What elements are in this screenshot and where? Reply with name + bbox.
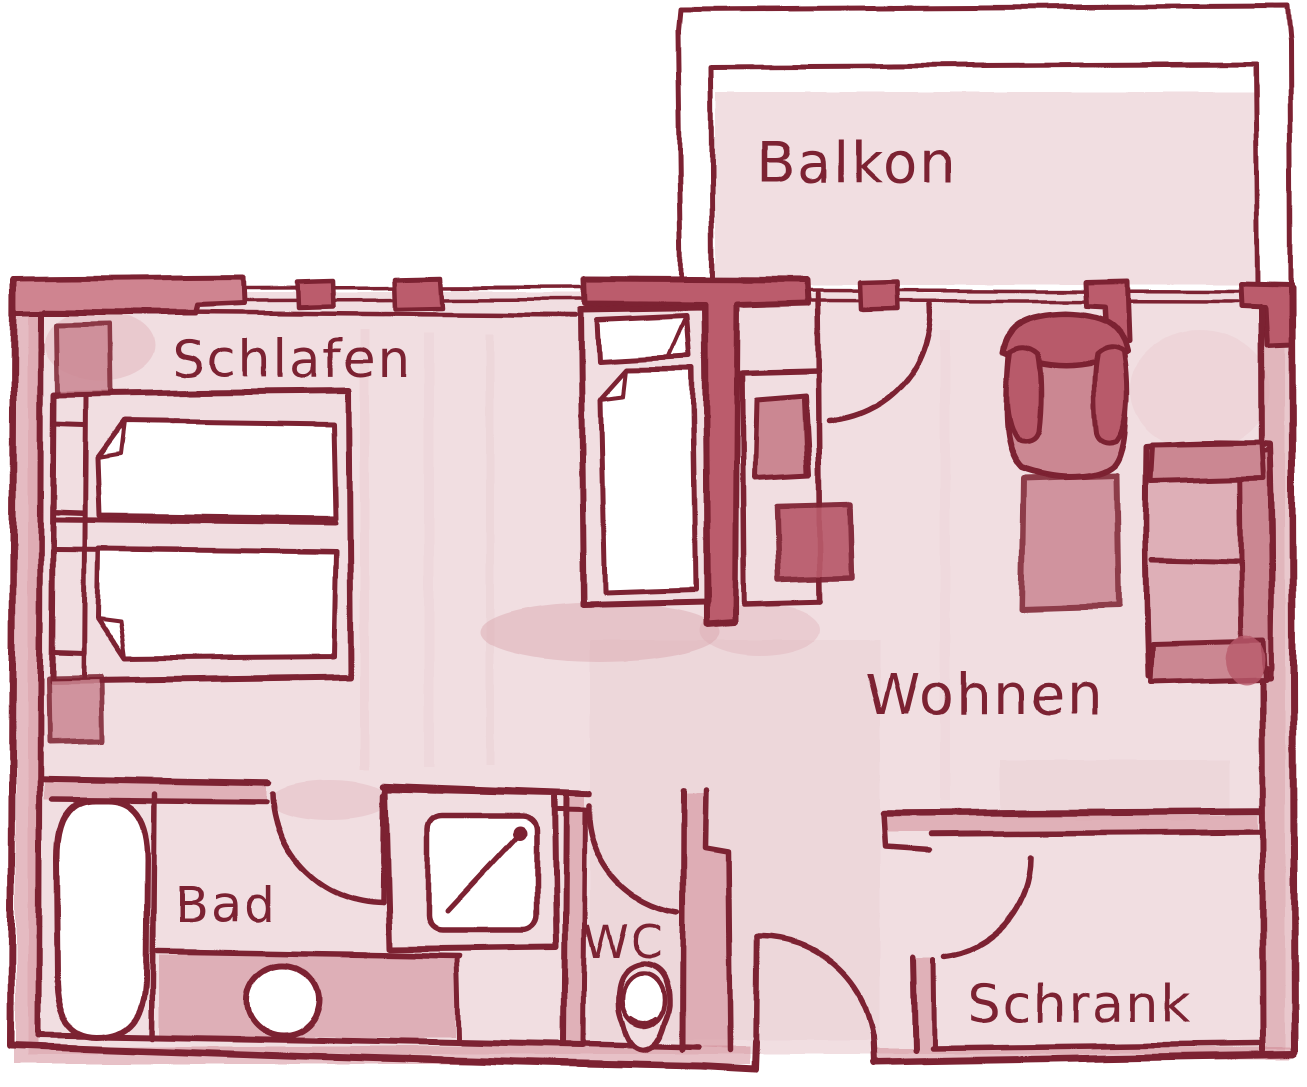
armchair — [1003, 313, 1128, 478]
window-post — [860, 281, 898, 309]
counter-edge — [457, 956, 459, 1039]
wall-schrank-left-2 — [933, 960, 934, 1048]
sink — [246, 965, 320, 1035]
bathtub-outline — [57, 801, 147, 1037]
shower — [386, 789, 556, 949]
wash-blot — [1130, 330, 1270, 450]
shower-arrow-head — [512, 826, 526, 840]
room-label-schlafen: Schlafen — [172, 330, 412, 390]
wall-schlafen-bad-1 — [40, 779, 268, 783]
wash-streak — [486, 335, 494, 765]
armchair-armrest — [1094, 348, 1128, 442]
wall-fill-left — [16, 282, 39, 1044]
window-post — [297, 281, 333, 307]
room-label-wohnen: Wohnen — [865, 663, 1104, 728]
mattress — [601, 369, 695, 593]
room-label-balkon: Balkon — [757, 131, 957, 196]
armchair-armrest — [1007, 348, 1041, 442]
wash-streak — [424, 332, 434, 767]
room-label-wc: WC — [583, 915, 665, 969]
wash-streak — [940, 330, 950, 800]
mattress — [97, 421, 336, 519]
wall-left-inner — [39, 313, 41, 1036]
room-label-bad: Bad — [175, 876, 278, 934]
wall-wc-right-1 — [683, 791, 684, 1049]
wall-schrank-left-1 — [913, 957, 915, 1050]
wall-wc-left-1 — [564, 794, 566, 1043]
sofa-seat-divider — [1152, 560, 1240, 562]
floor-plan: Balkon Schlafen Wohnen Bad WC Schrank — [0, 0, 1307, 1087]
side-table — [777, 505, 853, 579]
headboard-line — [84, 396, 86, 679]
room-label-schrank: Schrank — [968, 975, 1193, 1035]
toilet — [619, 964, 670, 1050]
wash-streak — [360, 330, 369, 770]
sofa-armrest — [1150, 442, 1264, 481]
nightstand — [57, 324, 111, 395]
nightstand — [48, 677, 103, 742]
bathtub — [57, 794, 154, 1038]
wall-schrank-top-1 — [882, 811, 1259, 813]
sofa-cushion-shade — [1226, 636, 1266, 684]
wall-left-outer — [11, 280, 14, 1046]
bathtub-surround — [152, 794, 154, 1038]
tv — [755, 396, 810, 477]
window-post — [396, 278, 443, 309]
coffee-table — [1022, 476, 1118, 609]
entrance-door-leaf — [756, 937, 757, 1044]
floor-plan-canvas: Balkon Schlafen Wohnen Bad WC Schrank — [0, 0, 1307, 1087]
wall-fill-schrank-left — [915, 958, 933, 1048]
wall-right-outer — [1292, 288, 1294, 1053]
toilet-bowl-inner — [623, 974, 665, 1026]
sofa — [1145, 442, 1272, 684]
mattress — [98, 548, 336, 659]
wall-schrank-top-2 — [930, 831, 1259, 833]
wash-blot — [270, 780, 390, 820]
